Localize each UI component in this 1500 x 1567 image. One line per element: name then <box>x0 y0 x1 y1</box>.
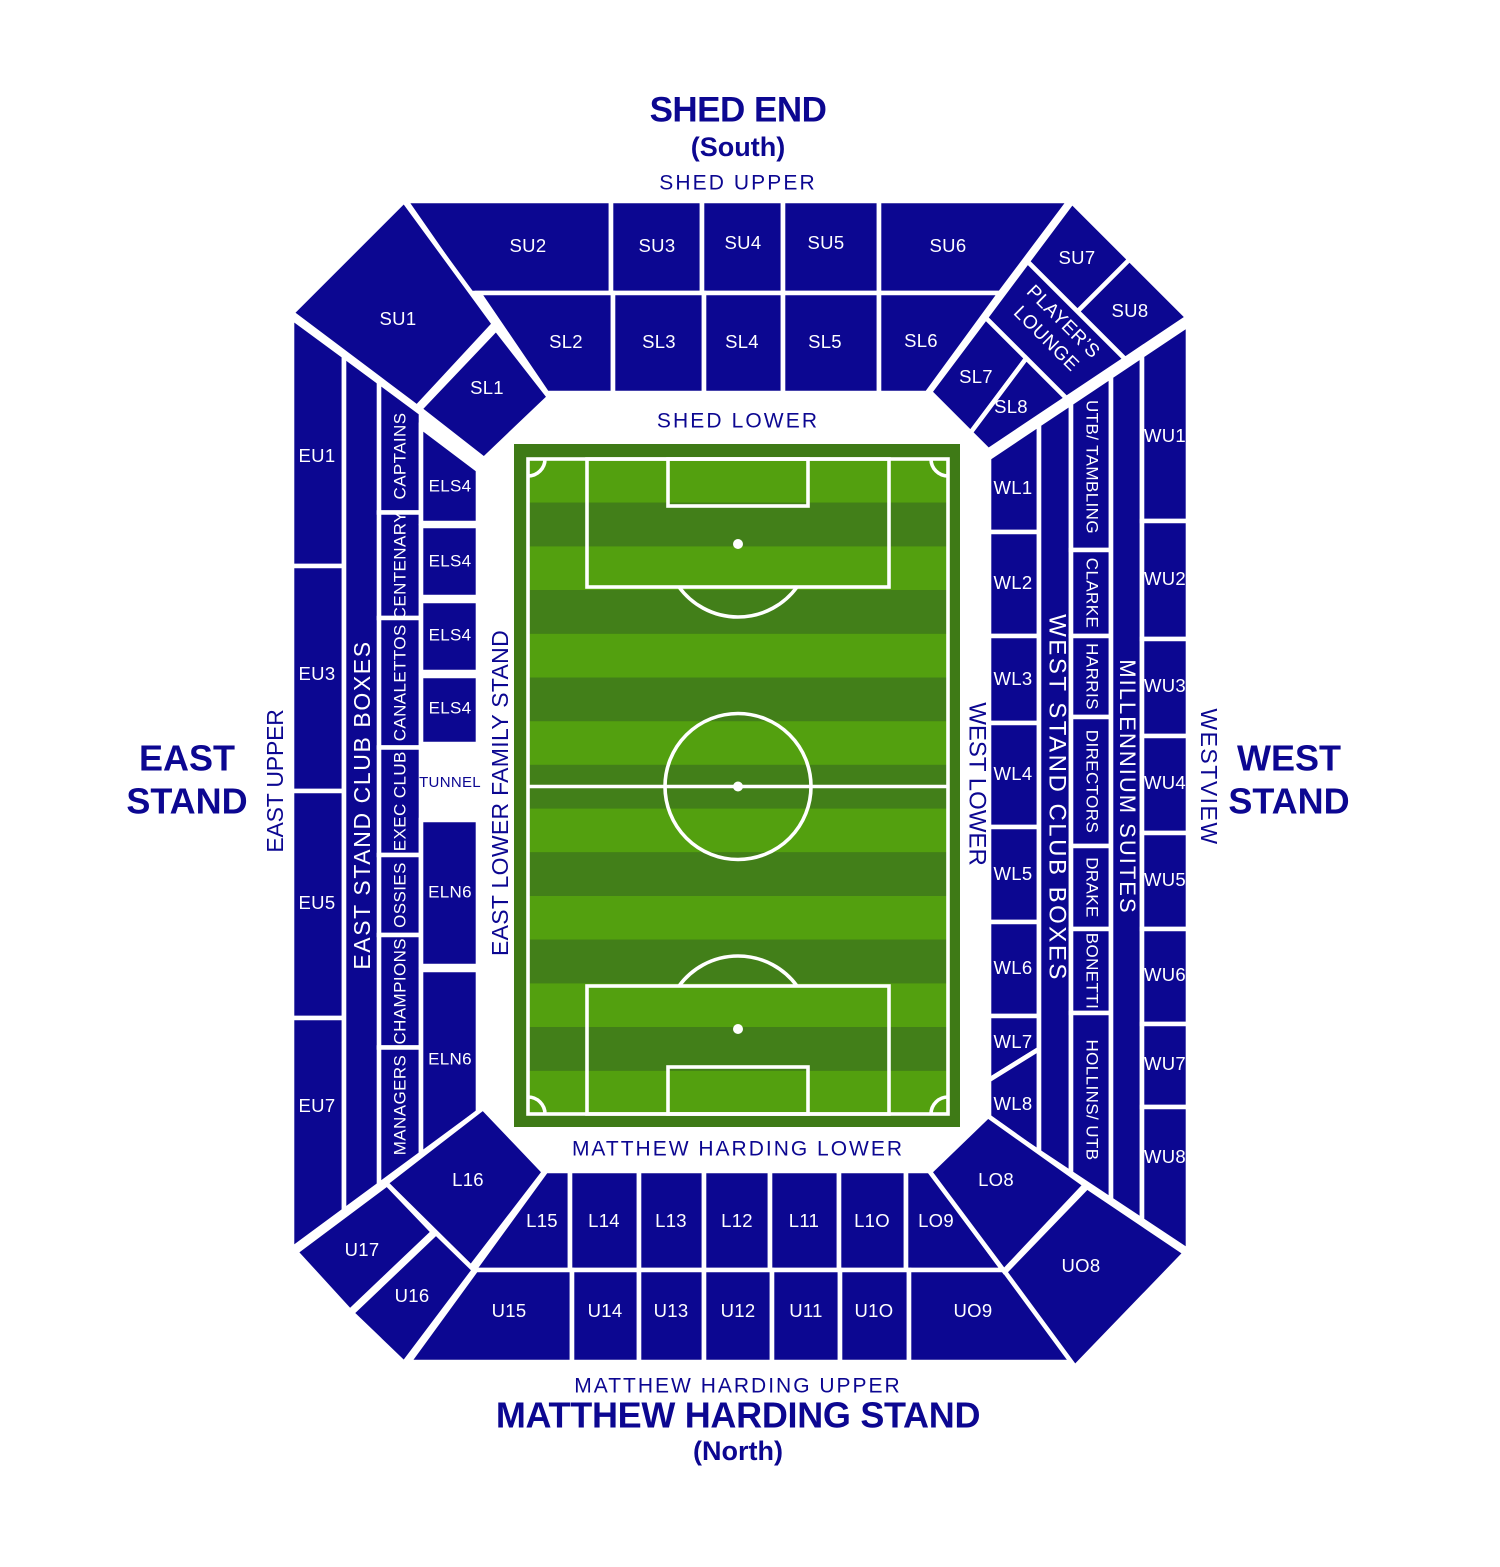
svg-text:DRAKE: DRAKE <box>1083 857 1102 918</box>
svg-text:L14: L14 <box>588 1210 620 1231</box>
svg-text:ELN6: ELN6 <box>428 882 472 901</box>
svg-text:SU3: SU3 <box>639 235 676 256</box>
svg-text:OSSIES: OSSIES <box>390 862 409 928</box>
svg-text:WU6: WU6 <box>1144 964 1186 985</box>
svg-text:U15: U15 <box>492 1300 527 1321</box>
svg-text:WU3: WU3 <box>1144 675 1186 696</box>
svg-text:EAST: EAST <box>139 738 235 779</box>
svg-text:HOLLINS/ UTB: HOLLINS/ UTB <box>1083 1040 1102 1161</box>
svg-text:WU1: WU1 <box>1144 425 1186 446</box>
svg-text:EAST STAND CLUB BOXES: EAST STAND CLUB BOXES <box>349 640 375 969</box>
svg-text:CANALETTOS: CANALETTOS <box>390 624 409 741</box>
svg-text:U13: U13 <box>654 1300 689 1321</box>
svg-text:SL7: SL7 <box>959 366 993 387</box>
svg-text:ELS4: ELS4 <box>429 551 472 570</box>
svg-text:SU6: SU6 <box>930 235 967 256</box>
svg-text:MANAGERS: MANAGERS <box>390 1055 409 1156</box>
svg-text:HARRIS: HARRIS <box>1083 643 1102 710</box>
svg-text:SHED LOWER: SHED LOWER <box>657 410 819 433</box>
svg-text:BONETTI: BONETTI <box>1083 933 1102 1009</box>
svg-text:WU2: WU2 <box>1144 568 1186 589</box>
svg-text:WL7: WL7 <box>994 1031 1033 1052</box>
svg-text:ELS4: ELS4 <box>429 698 472 717</box>
svg-text:MATTHEW HARDING STAND: MATTHEW HARDING STAND <box>496 1395 980 1436</box>
svg-text:WL4: WL4 <box>994 763 1033 784</box>
svg-text:SL2: SL2 <box>549 331 583 352</box>
svg-text:WESTVIEW: WESTVIEW <box>1196 708 1222 845</box>
svg-text:CAPTAINS: CAPTAINS <box>390 413 409 500</box>
svg-text:L16: L16 <box>452 1169 484 1190</box>
svg-text:SL5: SL5 <box>808 331 842 352</box>
svg-text:L13: L13 <box>655 1210 687 1231</box>
svg-text:SU5: SU5 <box>808 232 845 253</box>
svg-text:EAST UPPER: EAST UPPER <box>262 709 288 852</box>
svg-text:SHED UPPER: SHED UPPER <box>659 172 817 195</box>
svg-text:EXEC CLUB: EXEC CLUB <box>390 751 409 851</box>
svg-text:L11: L11 <box>789 1210 819 1231</box>
svg-text:MATTHEW HARDING LOWER: MATTHEW HARDING LOWER <box>572 1138 904 1161</box>
svg-text:SL3: SL3 <box>642 331 676 352</box>
svg-text:EU3: EU3 <box>299 663 336 684</box>
svg-text:EU1: EU1 <box>299 445 336 466</box>
svg-text:WEST: WEST <box>1237 738 1341 779</box>
svg-text:SL1: SL1 <box>470 377 504 398</box>
svg-text:L1O: L1O <box>854 1210 890 1231</box>
svg-text:U16: U16 <box>395 1285 430 1306</box>
svg-text:WL8: WL8 <box>994 1093 1033 1114</box>
svg-text:STAND: STAND <box>126 781 247 822</box>
svg-text:WU7: WU7 <box>1144 1053 1186 1074</box>
svg-text:WL2: WL2 <box>994 572 1033 593</box>
svg-text:U17: U17 <box>345 1239 380 1260</box>
svg-text:(South): (South) <box>691 132 785 162</box>
svg-text:UO9: UO9 <box>954 1300 993 1321</box>
svg-text:L15: L15 <box>526 1210 558 1231</box>
svg-text:SU7: SU7 <box>1059 247 1096 268</box>
svg-text:EU5: EU5 <box>299 892 336 913</box>
svg-text:U12: U12 <box>721 1300 756 1321</box>
svg-text:WU8: WU8 <box>1144 1146 1186 1167</box>
svg-text:WEST STAND CLUB BOXES: WEST STAND CLUB BOXES <box>1044 614 1071 982</box>
svg-text:CHAMPIONS: CHAMPIONS <box>390 938 409 1045</box>
svg-text:SU2: SU2 <box>510 235 547 256</box>
svg-text:ELS4: ELS4 <box>429 625 472 644</box>
svg-text:WL1: WL1 <box>994 477 1033 498</box>
svg-text:(North): (North) <box>693 1436 783 1466</box>
svg-text:SU4: SU4 <box>725 232 762 253</box>
svg-text:WL6: WL6 <box>994 957 1033 978</box>
svg-text:SU1: SU1 <box>380 308 417 329</box>
svg-text:WU4: WU4 <box>1144 772 1186 793</box>
svg-text:WU5: WU5 <box>1144 869 1186 890</box>
svg-text:STAND: STAND <box>1228 781 1349 822</box>
svg-text:CENTENARY: CENTENARY <box>390 511 409 619</box>
svg-text:ELN6: ELN6 <box>428 1049 472 1068</box>
svg-text:UTB/ TAMBLING: UTB/ TAMBLING <box>1083 400 1102 534</box>
svg-text:U14: U14 <box>588 1300 623 1321</box>
svg-text:CLARKE: CLARKE <box>1083 558 1102 628</box>
svg-text:SHED END: SHED END <box>650 90 827 129</box>
svg-text:TUNNEL: TUNNEL <box>419 774 481 791</box>
svg-text:UO8: UO8 <box>1062 1255 1101 1276</box>
svg-text:U1O: U1O <box>855 1300 894 1321</box>
svg-text:L12: L12 <box>721 1210 753 1231</box>
svg-text:WEST LOWER: WEST LOWER <box>964 702 991 866</box>
svg-text:EAST LOWER FAMILY STAND: EAST LOWER FAMILY STAND <box>487 630 513 956</box>
svg-text:EU7: EU7 <box>299 1095 336 1116</box>
svg-text:ELS4: ELS4 <box>429 476 472 495</box>
svg-text:DIRECTORS: DIRECTORS <box>1083 730 1102 833</box>
svg-text:SL8: SL8 <box>994 396 1028 417</box>
svg-text:LO9: LO9 <box>918 1210 954 1231</box>
svg-text:WL3: WL3 <box>994 668 1033 689</box>
svg-text:U11: U11 <box>789 1300 822 1321</box>
svg-text:LO8: LO8 <box>978 1169 1014 1190</box>
svg-text:SU8: SU8 <box>1112 300 1149 321</box>
svg-text:WL5: WL5 <box>994 863 1033 884</box>
svg-text:SL4: SL4 <box>725 331 759 352</box>
svg-text:SL6: SL6 <box>904 330 938 351</box>
svg-text:MILLENNIUM SUITES: MILLENNIUM SUITES <box>1115 659 1140 914</box>
